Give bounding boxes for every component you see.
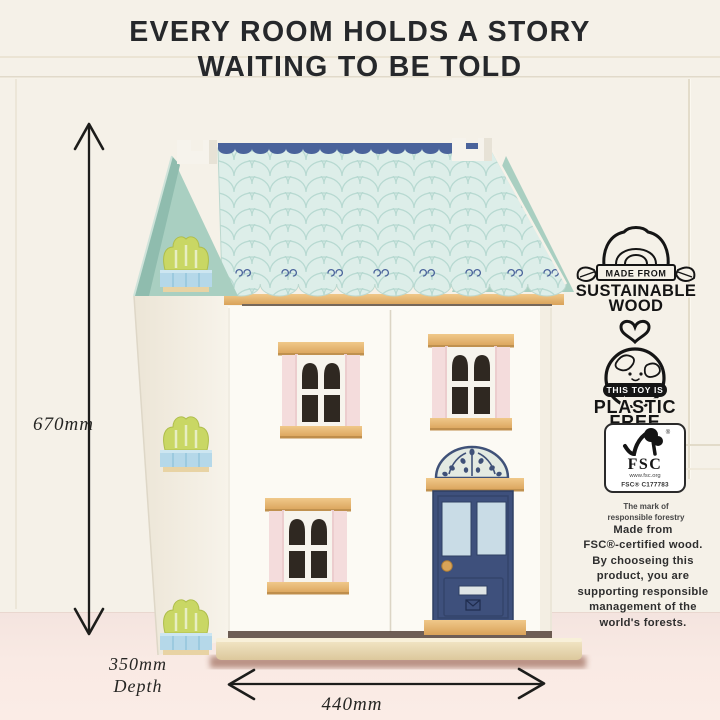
- fsc-description-text: Made from FSC®-certified wood. By choose…: [562, 523, 720, 631]
- width-dimension-label: 440mm: [298, 694, 406, 716]
- plastic-free-badge: THIS TOY IS PLASTIC FREE: [583, 315, 687, 429]
- plastic-free-banner-label: THIS TOY IS: [607, 385, 664, 395]
- fsc-registered-mark: ®: [666, 429, 671, 436]
- chimney-right: [452, 138, 492, 161]
- window-upper-left: [278, 342, 364, 439]
- fsc-license-code: FSC® C177783: [621, 481, 669, 489]
- height-dimension-arrow: [75, 124, 103, 634]
- depth-dimension-label: 350mm Depth: [84, 653, 192, 697]
- window-upper-right: [428, 334, 514, 431]
- front-door: [424, 478, 526, 635]
- door-window-pane: [477, 502, 506, 555]
- letter-slot: [459, 586, 487, 595]
- sustainable-banner-label: MADE FROM: [606, 269, 667, 279]
- height-dimension-label: 670mm: [6, 414, 94, 436]
- sustainable-title-line2: WOOD: [609, 297, 664, 314]
- dollhouse: [134, 138, 586, 668]
- fsc-certification-badge: ® FSC www.fsc.org FSC® C177783: [602, 422, 688, 496]
- door-knob: [442, 561, 452, 571]
- fsc-website: www.fsc.org: [628, 473, 660, 479]
- door-window-pane: [442, 502, 471, 556]
- window-lower-left: [265, 498, 351, 595]
- fsc-tagline: The mark of responsible forestry: [596, 502, 696, 524]
- door-threshold: [424, 620, 526, 635]
- sustainable-wood-badge: MADE FROM SUSTAINABLE WOOD: [570, 218, 702, 314]
- fsc-acronym: FSC: [628, 456, 663, 473]
- product-infographic: EVERY ROOM HOLDS A STORY WAITING TO BE T…: [0, 0, 720, 720]
- chimney-left: [177, 140, 217, 164]
